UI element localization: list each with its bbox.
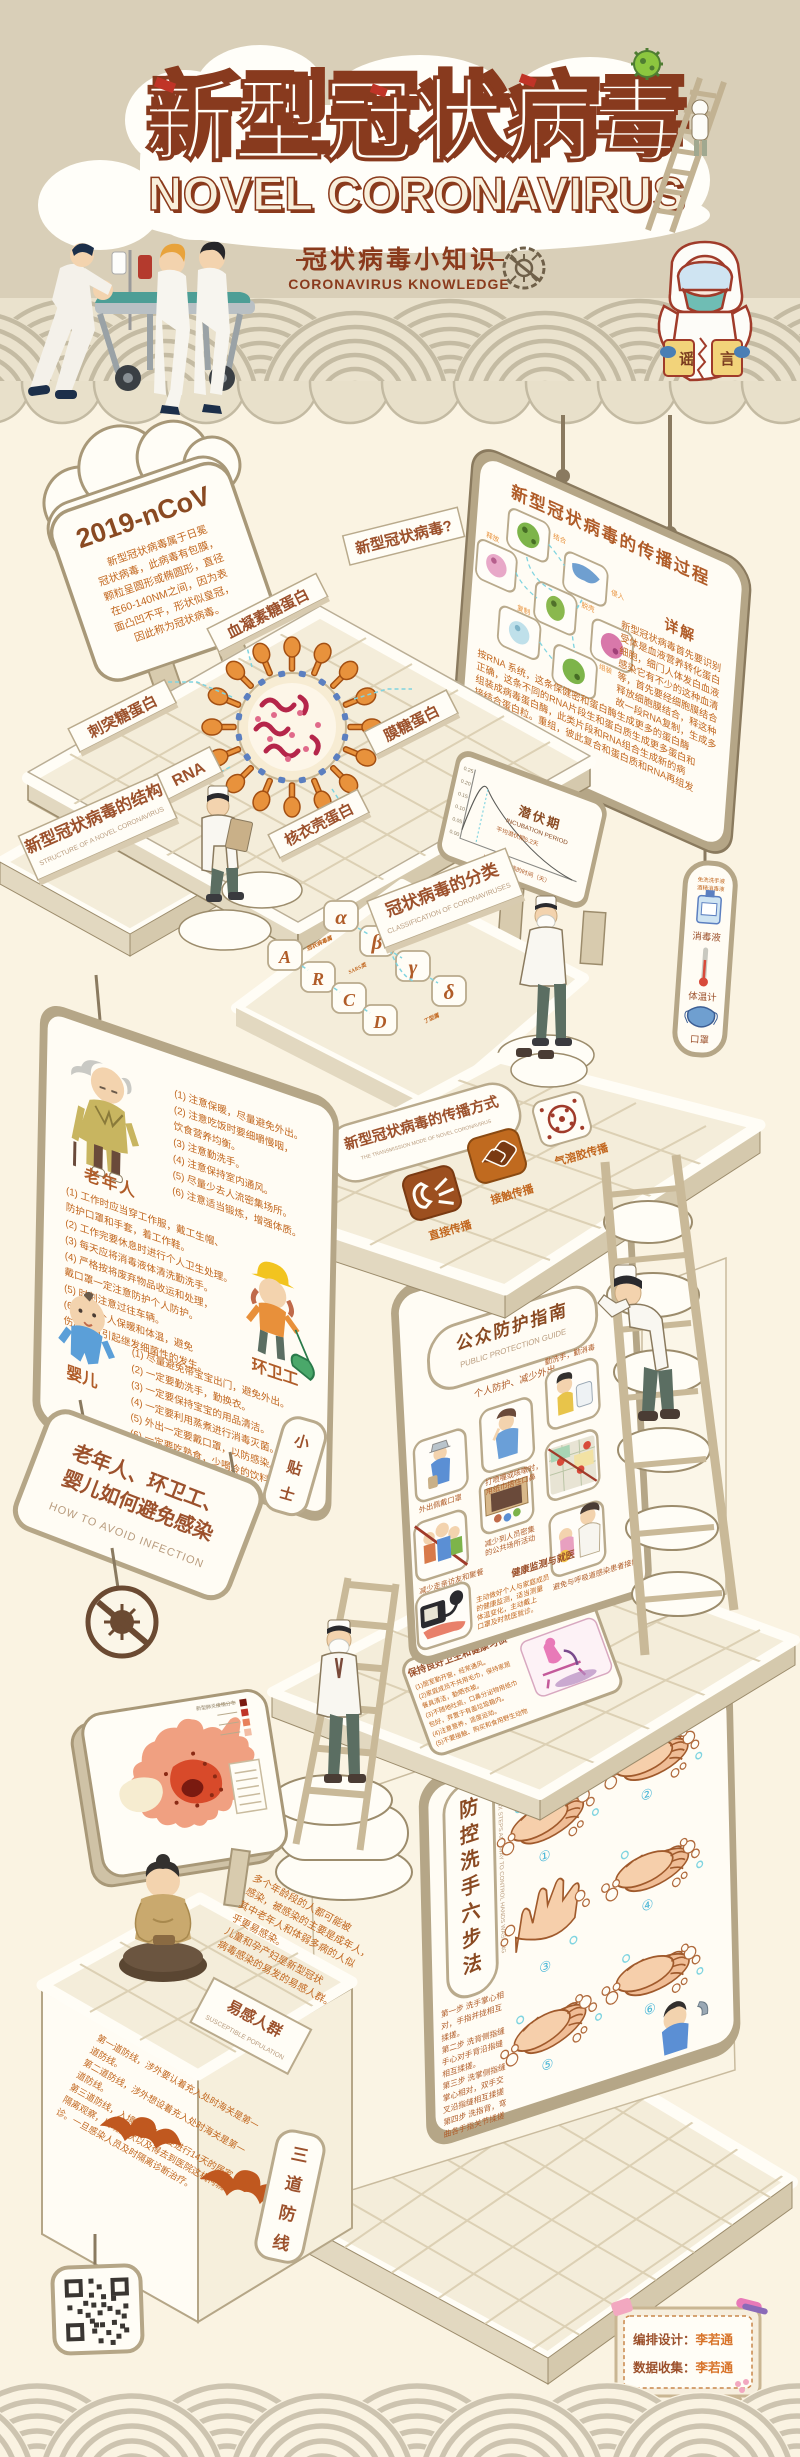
svg-text:口罩: 口罩: [690, 1034, 710, 1046]
svg-text:R: R: [311, 969, 324, 989]
svg-text:言: 言: [720, 350, 735, 368]
svg-text:数据收集：李若通: 数据收集：李若通: [632, 2360, 734, 2375]
svg-text:谣: 谣: [679, 350, 694, 368]
svg-text:C: C: [343, 990, 356, 1010]
svg-text:A: A: [278, 947, 291, 967]
svg-text:α: α: [335, 905, 347, 929]
svg-text:CORONAVIRUS KNOWLEDGE: CORONAVIRUS KNOWLEDGE: [288, 276, 509, 292]
svg-text:编排设计：李若通: 编排设计：李若通: [633, 2332, 734, 2347]
svg-text:冠状病毒小知识: 冠状病毒小知识: [302, 245, 498, 274]
svg-text:消毒液: 消毒液: [692, 930, 722, 944]
svg-text:体温计: 体温计: [688, 990, 718, 1004]
svg-text:δ: δ: [444, 980, 455, 1004]
svg-text:NOVEL CORONAVIRUS: NOVEL CORONAVIRUS: [148, 167, 688, 220]
svg-text:新型冠状病毒: 新型冠状病毒: [144, 73, 684, 173]
svg-text:D: D: [373, 1012, 387, 1032]
svg-text:γ: γ: [409, 955, 418, 979]
